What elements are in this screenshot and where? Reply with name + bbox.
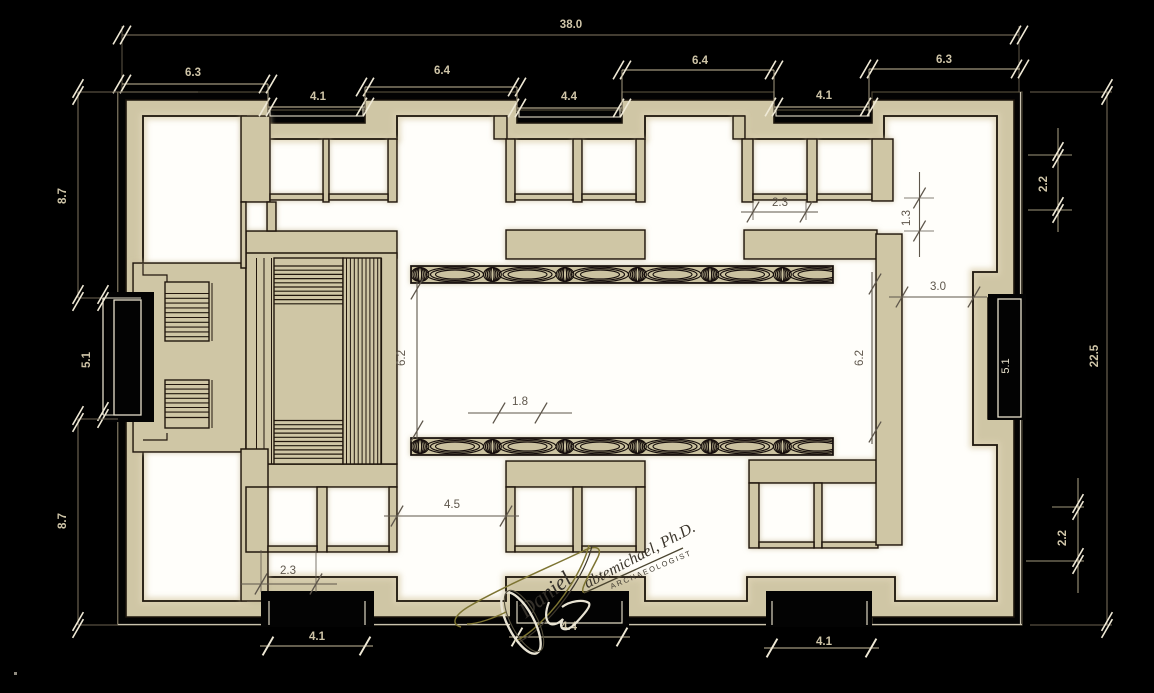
svg-text:4.1: 4.1 [816, 636, 833, 648]
svg-text:1.3: 1.3 [901, 210, 913, 226]
svg-text:38.0: 38.0 [560, 19, 582, 31]
svg-text:2.2: 2.2 [1038, 176, 1050, 192]
svg-text:4.1: 4.1 [309, 631, 326, 643]
svg-text:8.7: 8.7 [57, 188, 69, 204]
svg-text:5.1: 5.1 [1000, 358, 1012, 373]
svg-text:4.1: 4.1 [816, 90, 833, 102]
svg-text:4.5: 4.5 [444, 499, 460, 511]
svg-text:6.4: 6.4 [434, 65, 451, 77]
svg-text:22.5: 22.5 [1089, 344, 1101, 367]
svg-text:2.3: 2.3 [280, 565, 296, 577]
svg-text:2.3: 2.3 [772, 197, 788, 209]
svg-text:5.1: 5.1 [81, 351, 93, 368]
svg-text:6.3: 6.3 [936, 54, 952, 66]
svg-text:4.1: 4.1 [310, 91, 327, 103]
svg-text:3.0: 3.0 [930, 281, 946, 293]
svg-text:4.4: 4.4 [561, 91, 578, 103]
svg-text:6.2: 6.2 [396, 350, 408, 366]
svg-text:6.2: 6.2 [854, 350, 866, 366]
svg-text:1.8: 1.8 [512, 396, 528, 408]
svg-text:6.3: 6.3 [185, 67, 201, 79]
svg-text:6.4: 6.4 [692, 55, 709, 67]
svg-text:8.7: 8.7 [57, 513, 69, 529]
svg-text:2.2: 2.2 [1057, 530, 1069, 546]
